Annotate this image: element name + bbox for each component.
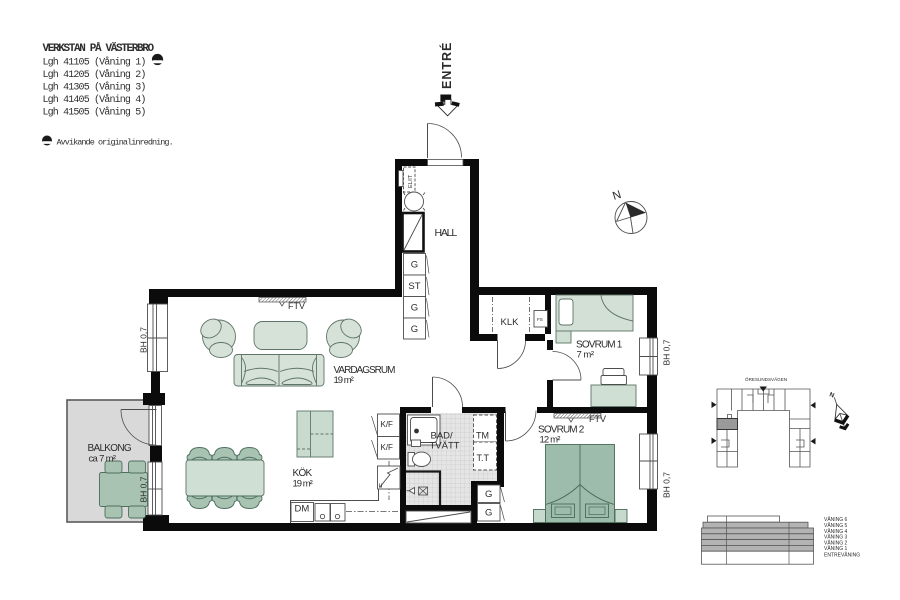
svg-text:G: G <box>411 303 418 314</box>
svg-text:ÖRESUNDSVÄGEN: ÖRESUNDSVÄGEN <box>745 376 787 382</box>
svg-text:19 m²: 19 m² <box>293 479 313 490</box>
svg-text:FTV: FTV <box>288 301 305 311</box>
svg-text:FS: FS <box>537 317 543 322</box>
svg-text:T.T: T.T <box>477 453 490 463</box>
svg-text:VÅNING 1: VÅNING 1 <box>824 545 848 552</box>
svg-text:HALL: HALL <box>435 227 458 239</box>
svg-text:ca 7 m²: ca 7 m² <box>89 454 116 465</box>
svg-text:Lgh 41205 (Våning 2): Lgh 41205 (Våning 2) <box>43 68 146 81</box>
svg-text:VERKSTAN PÅ VÄSTERBRO: VERKSTAN PÅ VÄSTERBRO <box>43 42 155 55</box>
svg-text:EL/IT: EL/IT <box>408 174 414 188</box>
svg-text:BH 0,7: BH 0,7 <box>139 476 149 502</box>
svg-text:G: G <box>485 508 492 519</box>
svg-text:BALKONG: BALKONG <box>88 443 132 454</box>
svg-text:K/F: K/F <box>381 443 394 452</box>
svg-text:G: G <box>411 260 418 271</box>
svg-text:BH 0,7: BH 0,7 <box>139 327 149 353</box>
svg-text:Lgh 41405 (Våning 4): Lgh 41405 (Våning 4) <box>43 93 146 106</box>
svg-text:KLK: KLK <box>501 317 520 328</box>
svg-text:BH 0,7: BH 0,7 <box>662 472 672 498</box>
svg-text:TVÄTT: TVÄTT <box>430 441 460 452</box>
svg-text:7 m²: 7 m² <box>577 350 594 361</box>
svg-text:TM: TM <box>476 431 489 441</box>
svg-text:N: N <box>611 189 623 203</box>
svg-text:19 m²: 19 m² <box>334 375 354 386</box>
svg-text:Lgh 41105 (Våning 1): Lgh 41105 (Våning 1) <box>43 56 146 69</box>
svg-text:DM: DM <box>295 504 310 515</box>
svg-text:ST: ST <box>408 281 420 292</box>
svg-text:KÖK: KÖK <box>293 467 313 479</box>
svg-text:Avvikande originalinredning.: Avvikande originalinredning. <box>57 138 173 148</box>
svg-text:VÅNING 6: VÅNING 6 <box>824 516 848 523</box>
svg-text:G: G <box>411 324 418 335</box>
svg-text:BH 0,7: BH 0,7 <box>662 339 672 365</box>
svg-text:Lgh 41505 (Våning 5): Lgh 41505 (Våning 5) <box>43 106 146 119</box>
svg-text:FTV: FTV <box>589 414 606 424</box>
svg-text:G: G <box>485 489 492 500</box>
svg-text:Lgh 41305 (Våning 3): Lgh 41305 (Våning 3) <box>43 81 146 94</box>
svg-text:ENTREVÅNING: ENTREVÅNING <box>824 552 860 559</box>
svg-text:12 m²: 12 m² <box>540 435 561 446</box>
svg-text:ENTRÉ: ENTRÉ <box>439 42 454 89</box>
svg-text:u: u <box>379 483 383 490</box>
svg-text:K/F: K/F <box>381 420 394 429</box>
